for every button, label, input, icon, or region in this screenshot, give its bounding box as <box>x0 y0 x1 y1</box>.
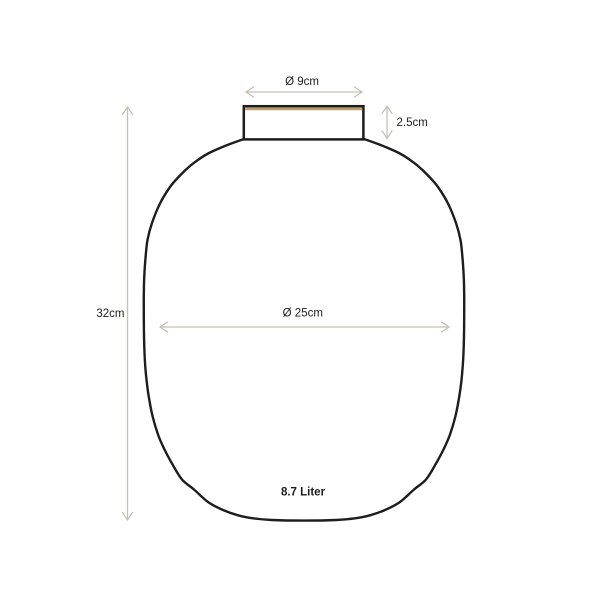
svg-text:Ø 9cm: Ø 9cm <box>285 76 319 88</box>
svg-text:8.7 Liter: 8.7 Liter <box>281 487 326 499</box>
svg-text:32cm: 32cm <box>96 308 124 320</box>
svg-text:Ø 25cm: Ø 25cm <box>283 308 323 320</box>
svg-text:2.5cm: 2.5cm <box>397 117 428 129</box>
